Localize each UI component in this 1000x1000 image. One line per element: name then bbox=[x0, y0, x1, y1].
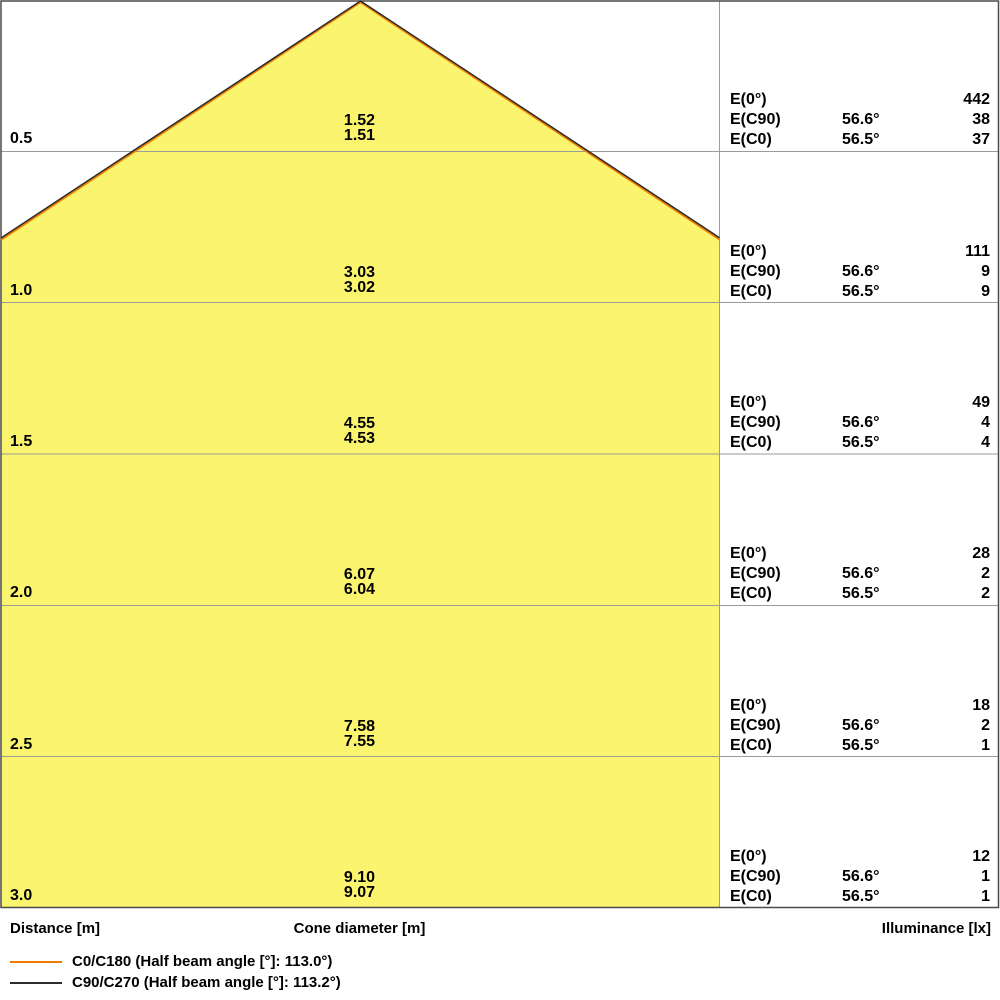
ec90-value: 2 bbox=[920, 564, 990, 584]
light-cone-diagram: 0.5 1.52 1.51 E(0°) 442 E(C90) 56.6° 38 … bbox=[0, 0, 1000, 1000]
ec90-angle: 56.6° bbox=[842, 716, 920, 736]
e0-angle bbox=[842, 696, 920, 716]
cone-diameter-values: 9.10 9.07 bbox=[0, 870, 719, 900]
cone-diameter-axis-label: Cone diameter [m] bbox=[0, 919, 719, 939]
e0-angle bbox=[842, 393, 920, 413]
cone-diameter-values: 3.03 3.02 bbox=[0, 265, 719, 295]
ec0-label: E(C0) bbox=[730, 282, 842, 302]
legend: C0/C180 (Half beam angle [°]: 113.0°) C9… bbox=[10, 951, 341, 993]
ec0-line: E(C0) 56.5° 1 bbox=[730, 736, 990, 756]
ec0-label: E(C0) bbox=[730, 584, 842, 604]
cone-diameter-values: 7.58 7.55 bbox=[0, 719, 719, 749]
ec90-line: E(C90) 56.6° 38 bbox=[730, 110, 990, 130]
cone-diameter-c90: 6.07 bbox=[0, 567, 719, 582]
e0-value: 28 bbox=[920, 544, 990, 564]
ec90-label: E(C90) bbox=[730, 564, 842, 584]
ec90-angle: 56.6° bbox=[842, 110, 920, 130]
ec90-label: E(C90) bbox=[730, 867, 842, 887]
e0-label: E(0°) bbox=[730, 90, 842, 110]
ec90-value: 2 bbox=[920, 716, 990, 736]
illuminance-table-cell: E(0°) 49 E(C90) 56.6° 4 E(C0) 56.5° 4 bbox=[730, 393, 990, 453]
ec90-angle: 56.6° bbox=[842, 564, 920, 584]
ec0-value: 9 bbox=[920, 282, 990, 302]
ec90-label: E(C90) bbox=[730, 413, 842, 433]
ec0-line: E(C0) 56.5° 1 bbox=[730, 887, 990, 907]
e0-line: E(0°) 28 bbox=[730, 544, 990, 564]
ec90-angle: 56.6° bbox=[842, 867, 920, 887]
ec90-line: E(C90) 56.6° 9 bbox=[730, 262, 990, 282]
e0-label: E(0°) bbox=[730, 393, 842, 413]
ec90-value: 9 bbox=[920, 262, 990, 282]
e0-line: E(0°) 12 bbox=[730, 847, 990, 867]
ec90-label: E(C90) bbox=[730, 716, 842, 736]
ec0-line: E(C0) 56.5° 37 bbox=[730, 130, 990, 150]
e0-line: E(0°) 442 bbox=[730, 90, 990, 110]
ec0-value: 1 bbox=[920, 887, 990, 907]
ec90-line: E(C90) 56.6° 1 bbox=[730, 867, 990, 887]
illuminance-table-cell: E(0°) 111 E(C90) 56.6° 9 E(C0) 56.5° 9 bbox=[730, 242, 990, 302]
ec0-angle: 56.5° bbox=[842, 887, 920, 907]
ec0-value: 37 bbox=[920, 130, 990, 150]
ec0-value: 1 bbox=[920, 736, 990, 756]
cone-diameter-c0: 4.53 bbox=[0, 431, 719, 446]
e0-value: 18 bbox=[920, 696, 990, 716]
ec0-label: E(C0) bbox=[730, 887, 842, 907]
ec0-angle: 56.5° bbox=[842, 282, 920, 302]
ec90-line: E(C90) 56.6° 4 bbox=[730, 413, 990, 433]
cone-diameter-c0: 7.55 bbox=[0, 734, 719, 749]
cone-diameter-c90: 3.03 bbox=[0, 265, 719, 280]
e0-label: E(0°) bbox=[730, 242, 842, 262]
e0-angle bbox=[842, 847, 920, 867]
ec90-line: E(C90) 56.6° 2 bbox=[730, 564, 990, 584]
ec0-value: 4 bbox=[920, 433, 990, 453]
ec90-line: E(C90) 56.6° 2 bbox=[730, 716, 990, 736]
ec90-value: 38 bbox=[920, 110, 990, 130]
ec0-angle: 56.5° bbox=[842, 433, 920, 453]
cone-diameter-c0: 3.02 bbox=[0, 280, 719, 295]
e0-value: 12 bbox=[920, 847, 990, 867]
legend-item-c90-c270: C90/C270 (Half beam angle [°]: 113.2°) bbox=[10, 972, 341, 993]
illuminance-axis-label: Illuminance [lx] bbox=[882, 919, 991, 939]
ec90-value: 4 bbox=[920, 413, 990, 433]
e0-line: E(0°) 49 bbox=[730, 393, 990, 413]
e0-value: 49 bbox=[920, 393, 990, 413]
e0-angle bbox=[842, 242, 920, 262]
cone-diameter-c90: 7.58 bbox=[0, 719, 719, 734]
legend-item-c0-c180: C0/C180 (Half beam angle [°]: 113.0°) bbox=[10, 951, 341, 972]
e0-value: 111 bbox=[920, 242, 990, 262]
ec90-label: E(C90) bbox=[730, 110, 842, 130]
e0-label: E(0°) bbox=[730, 544, 842, 564]
illuminance-table-cell: E(0°) 18 E(C90) 56.6° 2 E(C0) 56.5° 1 bbox=[730, 696, 990, 756]
ec90-label: E(C90) bbox=[730, 262, 842, 282]
ec0-line: E(C0) 56.5° 2 bbox=[730, 584, 990, 604]
c90-c270-legend-label: C90/C270 (Half beam angle [°]: 113.2°) bbox=[72, 972, 341, 993]
e0-label: E(0°) bbox=[730, 696, 842, 716]
ec0-angle: 56.5° bbox=[842, 130, 920, 150]
cone-diameter-c90: 9.10 bbox=[0, 870, 719, 885]
e0-line: E(0°) 111 bbox=[730, 242, 990, 262]
ec0-line: E(C0) 56.5° 9 bbox=[730, 282, 990, 302]
cone-diameter-c90: 1.52 bbox=[0, 113, 719, 128]
ec0-line: E(C0) 56.5° 4 bbox=[730, 433, 990, 453]
ec0-angle: 56.5° bbox=[842, 736, 920, 756]
ec90-angle: 56.6° bbox=[842, 413, 920, 433]
ec90-angle: 56.6° bbox=[842, 262, 920, 282]
cone-diameter-values: 4.55 4.53 bbox=[0, 416, 719, 446]
e0-label: E(0°) bbox=[730, 847, 842, 867]
illuminance-table-cell: E(0°) 442 E(C90) 56.6° 38 E(C0) 56.5° 37 bbox=[730, 90, 990, 150]
ec0-angle: 56.5° bbox=[842, 584, 920, 604]
illuminance-table-cell: E(0°) 12 E(C90) 56.6° 1 E(C0) 56.5° 1 bbox=[730, 847, 990, 907]
cone-diameter-c90: 4.55 bbox=[0, 416, 719, 431]
c0-c180-legend-label: C0/C180 (Half beam angle [°]: 113.0°) bbox=[72, 951, 332, 972]
e0-angle bbox=[842, 544, 920, 564]
e0-angle bbox=[842, 90, 920, 110]
ec0-label: E(C0) bbox=[730, 130, 842, 150]
cone-diameter-c0: 9.07 bbox=[0, 885, 719, 900]
ec0-label: E(C0) bbox=[730, 736, 842, 756]
cone-diameter-values: 6.07 6.04 bbox=[0, 567, 719, 597]
illuminance-table-cell: E(0°) 28 E(C90) 56.6° 2 E(C0) 56.5° 2 bbox=[730, 544, 990, 604]
e0-value: 442 bbox=[920, 90, 990, 110]
ec90-value: 1 bbox=[920, 867, 990, 887]
cone-diameter-c0: 1.51 bbox=[0, 128, 719, 143]
e0-line: E(0°) 18 bbox=[730, 696, 990, 716]
c0-c180-line-swatch bbox=[10, 961, 62, 963]
ec0-value: 2 bbox=[920, 584, 990, 604]
ec0-label: E(C0) bbox=[730, 433, 842, 453]
cone-diameter-values: 1.52 1.51 bbox=[0, 113, 719, 143]
c90-c270-line-swatch bbox=[10, 982, 62, 984]
cone-diameter-c0: 6.04 bbox=[0, 582, 719, 597]
